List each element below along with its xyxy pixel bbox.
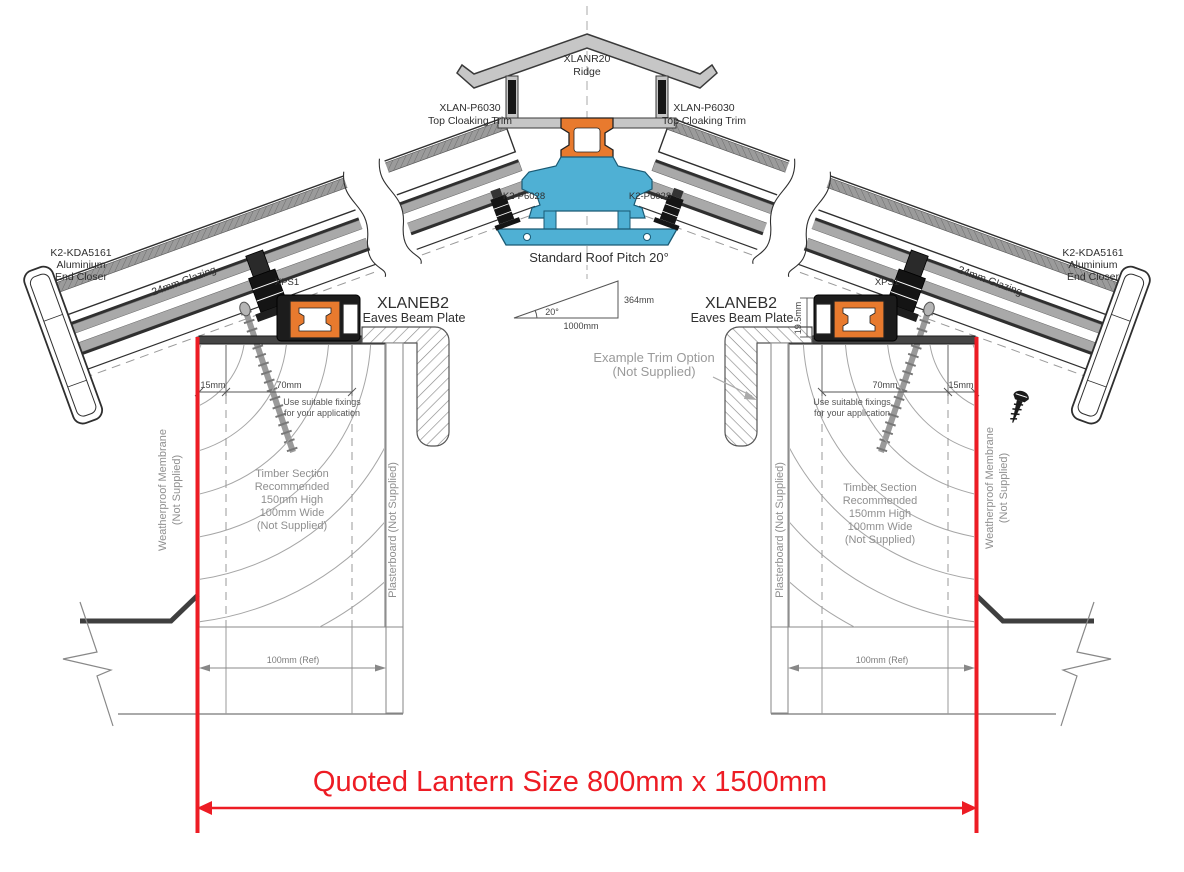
- plasterboard-left: Plasterboard (Not Supplied): [387, 462, 399, 598]
- cloaking-name-right: Top Cloaking Trim: [662, 115, 746, 127]
- fixings-l2-right: for your application: [814, 408, 890, 418]
- quoted-size-label: Quoted Lantern Size 800mm x 1500mm: [313, 766, 827, 798]
- timber-l4-left: 100mm Wide: [260, 507, 325, 519]
- timber-l2-left: Recommended: [255, 481, 330, 493]
- ridge-name-label: Ridge: [573, 66, 601, 78]
- eaves-beam-cavity: [299, 308, 331, 331]
- end-closer-l1-left: Aluminium: [56, 259, 105, 271]
- spider-foot-left: [544, 211, 556, 231]
- dim-70-right: 70mm: [872, 380, 897, 390]
- k2p6028-left: K2-P6028: [503, 191, 545, 202]
- ref-dim-right: 100mm (Ref): [856, 655, 909, 665]
- trim-option-l2: (Not Supplied): [612, 364, 695, 379]
- pitch-rise: 364mm: [624, 295, 654, 305]
- xps-label-right: XPS1: [875, 277, 899, 288]
- cloaking-name-left: Top Cloaking Trim: [428, 115, 512, 127]
- trim-option-l1: Example Trim Option: [593, 350, 714, 365]
- timber-l1-left: Timber Section: [255, 468, 329, 480]
- eaves-name-left: Eaves Beam Plate: [363, 311, 466, 325]
- example-trim: [362, 327, 449, 446]
- timber-l2-right: Recommended: [843, 495, 918, 507]
- wall-ref-dimension: [199, 665, 386, 672]
- eaves-beam: [277, 295, 360, 341]
- end-closer-l1-right: Aluminium: [1068, 259, 1117, 271]
- timber-l3-left: 150mm High: [261, 494, 323, 506]
- eaves-name-right: Eaves Beam Plate: [691, 311, 794, 325]
- spider-foot-right: [618, 211, 630, 231]
- ridge-thermal-spider: [522, 157, 652, 218]
- ridge-gasket-left: [508, 80, 516, 114]
- roof-lantern-section-drawing: XLANR20 Ridge XLAN-P6030 Top Cloaking Tr…: [0, 0, 1184, 872]
- ridge-code-label: XLANR20: [564, 53, 611, 65]
- pitch-triangle: [514, 281, 618, 318]
- xps-label-left: XPS1: [275, 277, 299, 288]
- timber-l3-right: 150mm High: [849, 508, 911, 520]
- membrane-l1-right: Weatherproof Membrane: [984, 427, 996, 549]
- fixings-l1-right: Use suitable fixings: [813, 397, 891, 407]
- membrane-l2-right: (Not Supplied): [998, 453, 1010, 523]
- end-closer-code-left: K2-KDA5161: [50, 247, 111, 259]
- end-closer-code-right: K2-KDA5161: [1062, 247, 1123, 259]
- timber-l4-right: 100mm Wide: [848, 521, 913, 533]
- weatherproof-membrane: [80, 595, 198, 621]
- ref-dim-left: 100mm (Ref): [267, 655, 320, 665]
- ridge-orange-cavity: [574, 128, 600, 152]
- ridge-gasket-right: [658, 80, 666, 114]
- membrane-l1-left: Weatherproof Membrane: [157, 429, 169, 551]
- fixings-l1-left: Use suitable fixings: [283, 397, 361, 407]
- top-cloaking-trim-surface: [54, 120, 507, 293]
- pitch-title: Standard Roof Pitch 20°: [529, 250, 669, 265]
- end-closer-l2-left: End Closer: [55, 271, 107, 283]
- dim-upstand-right: 19.5mm: [793, 302, 803, 335]
- dim-70-left: 70mm: [276, 380, 301, 390]
- screw-icon: [1005, 389, 1030, 425]
- dim-15-left: 15mm: [200, 380, 225, 390]
- plasterboard-right: Plasterboard (Not Supplied): [774, 462, 786, 598]
- cloaking-code-right: XLAN-P6030: [673, 102, 734, 114]
- cloaking-code-left: XLAN-P6030: [439, 102, 500, 114]
- end-closer-l2-right: End Closer: [1067, 271, 1119, 283]
- eaves-code-left: XLANEB2: [377, 295, 449, 312]
- eaves-beam-chamber: [343, 304, 358, 334]
- timber-l1-right: Timber Section: [843, 482, 917, 494]
- membrane-l2-left: (Not Supplied): [171, 455, 183, 525]
- timber-l5-right: (Not Supplied): [845, 534, 915, 546]
- fixings-l2-left: for your application: [284, 408, 360, 418]
- k2p6028-right: K2-P6028: [629, 191, 671, 202]
- eaves-code-right: XLANEB2: [705, 295, 777, 312]
- dim-15-right: 15mm: [948, 380, 973, 390]
- pitch-run: 1000mm: [563, 321, 598, 331]
- timber-l5-left: (Not Supplied): [257, 520, 327, 532]
- pitch-angle: 20°: [545, 307, 559, 317]
